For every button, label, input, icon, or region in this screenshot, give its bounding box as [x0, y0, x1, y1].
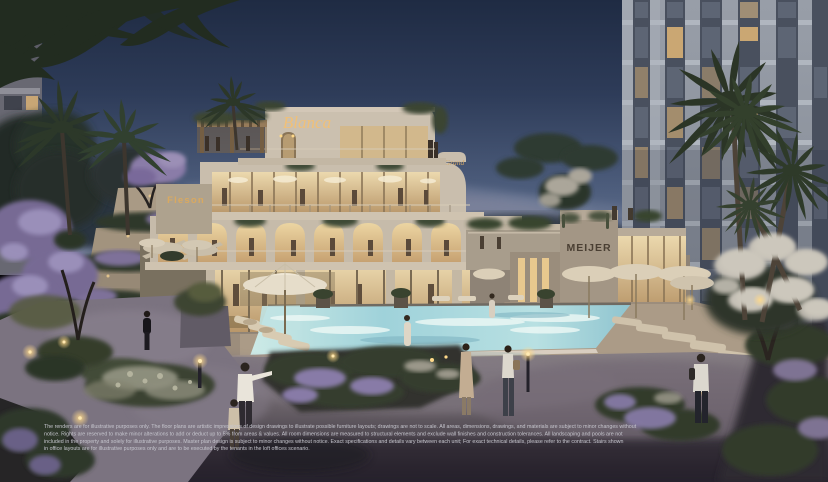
- svg-text:Blanca: Blanca: [283, 113, 331, 132]
- svg-text:The renders are for illustrati: The renders are for illustrative purpose…: [44, 424, 637, 430]
- svg-text:in office layouts are for illu: in office layouts are for illustrative p…: [44, 446, 310, 452]
- svg-text:Fleson: Fleson: [167, 195, 205, 206]
- svg-text:included in the property and s: included in the property and solely for …: [44, 439, 623, 445]
- svg-text:notice. Rights are reserved to: notice. Rights are reserved to make mino…: [44, 431, 623, 437]
- svg-text:MEIJER: MEIJER: [566, 242, 611, 254]
